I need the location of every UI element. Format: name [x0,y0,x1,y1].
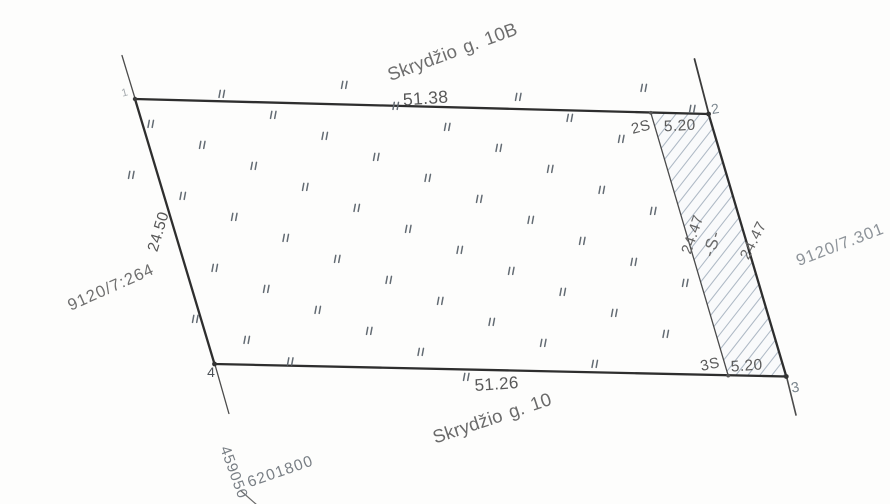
svg-text:5.20: 5.20 [730,356,763,375]
svg-text:51.38: 51.38 [402,86,449,109]
svg-text:4: 4 [207,364,215,380]
svg-text:5.20: 5.20 [663,117,696,136]
svg-text:51.26: 51.26 [474,373,519,395]
